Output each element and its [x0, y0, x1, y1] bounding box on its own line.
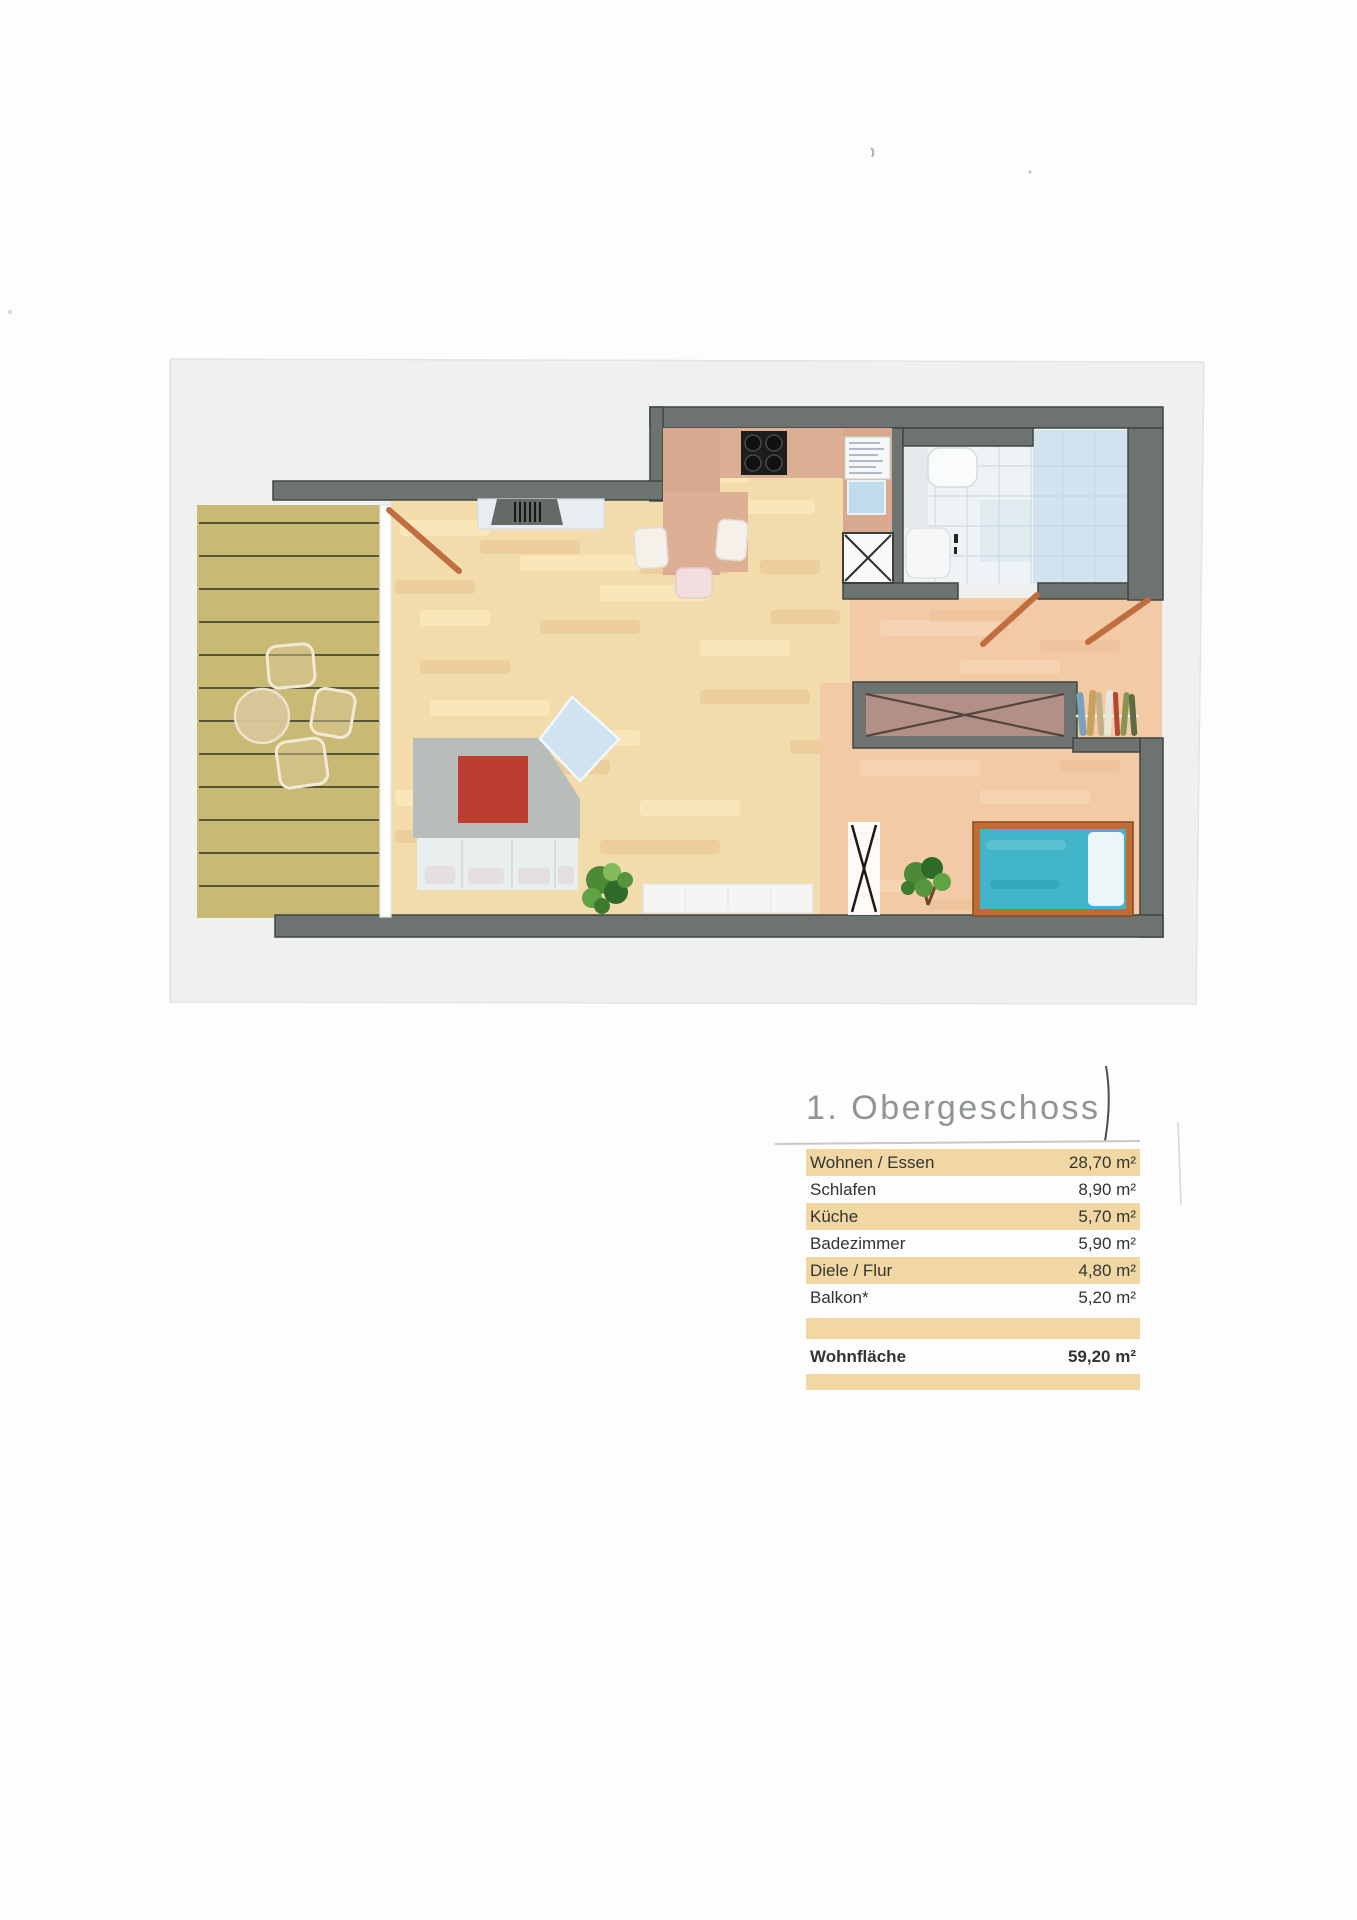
title-divider-line — [775, 1141, 1140, 1144]
balcony-chair — [275, 737, 329, 789]
room-area-value: 5,70 m² — [1078, 1203, 1136, 1230]
shower-area — [903, 448, 928, 528]
room-label: Schlafen — [810, 1176, 876, 1203]
table-bottom-band — [806, 1374, 1140, 1390]
dining-chair — [634, 527, 669, 569]
toilet-flush-mark — [954, 547, 957, 554]
total-row: Wohnfläche 59,20 m² — [806, 1343, 1140, 1370]
area-table-rows: Wohnen / Essen28,70 m²Schlafen8,90 m²Küc… — [806, 1149, 1140, 1311]
table-row: Diele / Flur4,80 m² — [806, 1257, 1140, 1284]
wall-bath-top-band — [903, 428, 1033, 446]
wall-bath-bottom-right — [1038, 583, 1128, 599]
wall-right-lower — [1140, 738, 1163, 937]
room-area-value: 5,20 m² — [1078, 1284, 1136, 1311]
balcony-table — [235, 689, 289, 743]
mattress-shade — [990, 880, 1060, 889]
bathroom-blue-wash — [980, 500, 1032, 562]
table-row: Wohnen / Essen28,70 m² — [806, 1149, 1140, 1176]
wall-bath-bottom-left — [843, 583, 958, 599]
mattress-highlight — [986, 840, 1066, 850]
room-area-value: 8,90 m² — [1078, 1176, 1136, 1203]
room-label: Wohnen / Essen — [810, 1149, 934, 1176]
bathroom-blue-tiles — [1033, 430, 1127, 583]
total-value: 59,20 m² — [1068, 1343, 1136, 1370]
wall-right-upper — [1128, 428, 1163, 600]
dining-chair — [715, 519, 748, 561]
floor-plan — [0, 0, 1357, 1920]
room-area-value: 4,80 m² — [1078, 1257, 1136, 1284]
kitchen-sink — [848, 481, 885, 514]
wall-top — [650, 407, 1163, 428]
toilet-flush-mark — [954, 534, 958, 543]
bed-pillow — [1088, 832, 1124, 906]
balcony-glass-front — [380, 505, 391, 917]
room-area-value: 5,90 m² — [1078, 1230, 1136, 1257]
wall-bottom — [275, 915, 1163, 937]
speck — [1028, 170, 1031, 173]
room-label: Badezimmer — [810, 1230, 905, 1257]
balcony — [197, 505, 380, 918]
balcony-chair — [309, 687, 356, 739]
speck — [871, 148, 873, 157]
toilet — [906, 528, 950, 578]
total-label: Wohnfläche — [810, 1343, 906, 1370]
bathroom — [903, 428, 1128, 583]
tv-unit — [491, 499, 563, 525]
table-empty-band — [806, 1318, 1140, 1339]
room-label: Diele / Flur — [810, 1257, 892, 1284]
balcony-chair — [266, 643, 315, 689]
table-row: Balkon*5,20 m² — [806, 1284, 1140, 1311]
entrance-door-opening-floor — [1140, 600, 1162, 738]
scanned-page: 1. Obergeschoss Wohnen / Essen28,70 m²Sc… — [0, 0, 1357, 1920]
bed — [973, 822, 1133, 916]
room-area-value: 28,70 m² — [1069, 1149, 1136, 1176]
wall-niche-bottom — [1073, 738, 1140, 752]
table-row: Badezimmer5,90 m² — [806, 1230, 1140, 1257]
area-table: Wohnen / Essen28,70 m²Schlafen8,90 m²Küc… — [806, 1149, 1140, 1390]
speck — [8, 310, 12, 314]
room-label: Küche — [810, 1203, 858, 1230]
table-row: Küche5,70 m² — [806, 1203, 1140, 1230]
sofa-red-cushion — [458, 756, 528, 823]
table-row: Schlafen8,90 m² — [806, 1176, 1140, 1203]
room-label: Balkon* — [810, 1284, 869, 1311]
valet-chair — [848, 822, 880, 915]
floor-title: 1. Obergeschoss — [806, 1089, 1146, 1128]
dining-chair — [676, 568, 712, 598]
wall-living-top — [273, 481, 663, 500]
washbasin — [928, 448, 977, 487]
table-spacer — [806, 1311, 1140, 1318]
faint-pen-line — [1178, 1122, 1181, 1205]
